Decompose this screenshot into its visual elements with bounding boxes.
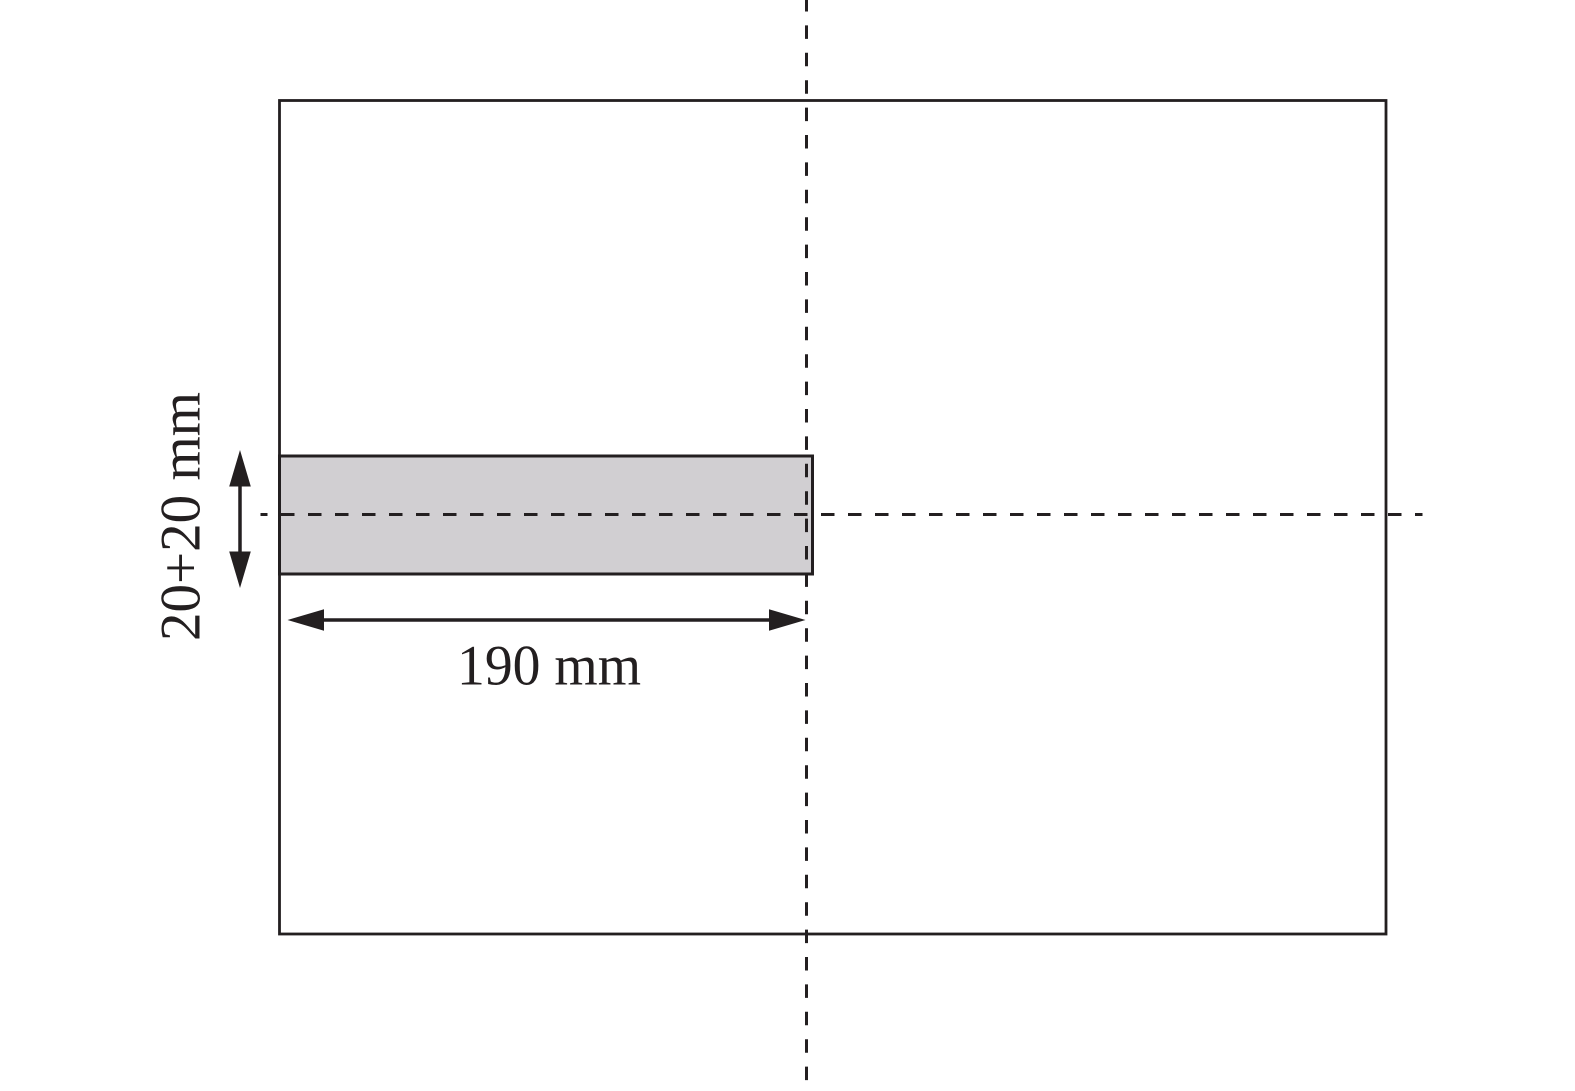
svg-text:20+20 mm: 20+20 mm bbox=[150, 392, 213, 641]
svg-text:190 mm: 190 mm bbox=[457, 635, 641, 698]
